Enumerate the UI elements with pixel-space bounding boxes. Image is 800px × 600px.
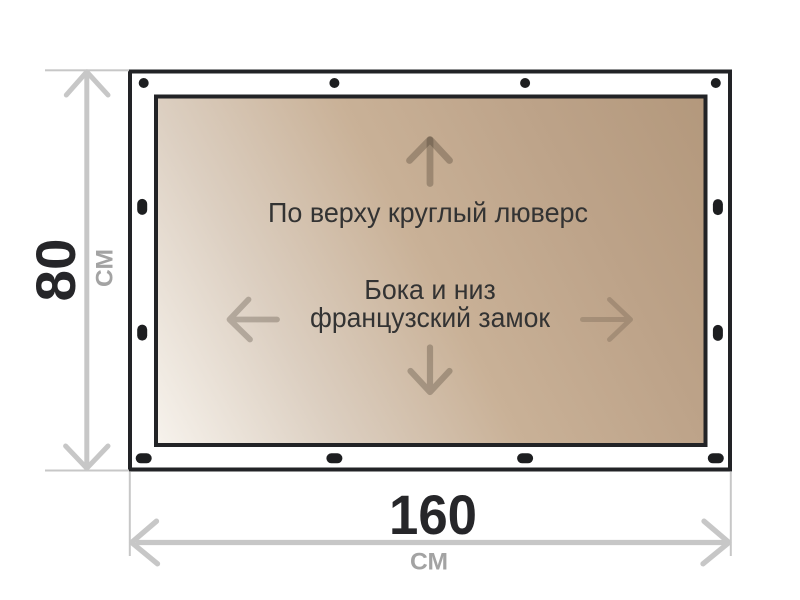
- svg-text:СМ: СМ: [92, 249, 119, 287]
- svg-text:По верху круглый люверс: По верху круглый люверс: [268, 197, 588, 228]
- svg-text:Бока и низ: Бока и низ: [364, 274, 496, 305]
- svg-text:СМ: СМ: [410, 549, 448, 576]
- svg-text:80: 80: [24, 239, 87, 302]
- svg-text:160: 160: [389, 483, 477, 546]
- svg-text:французский замок: французский замок: [310, 302, 551, 333]
